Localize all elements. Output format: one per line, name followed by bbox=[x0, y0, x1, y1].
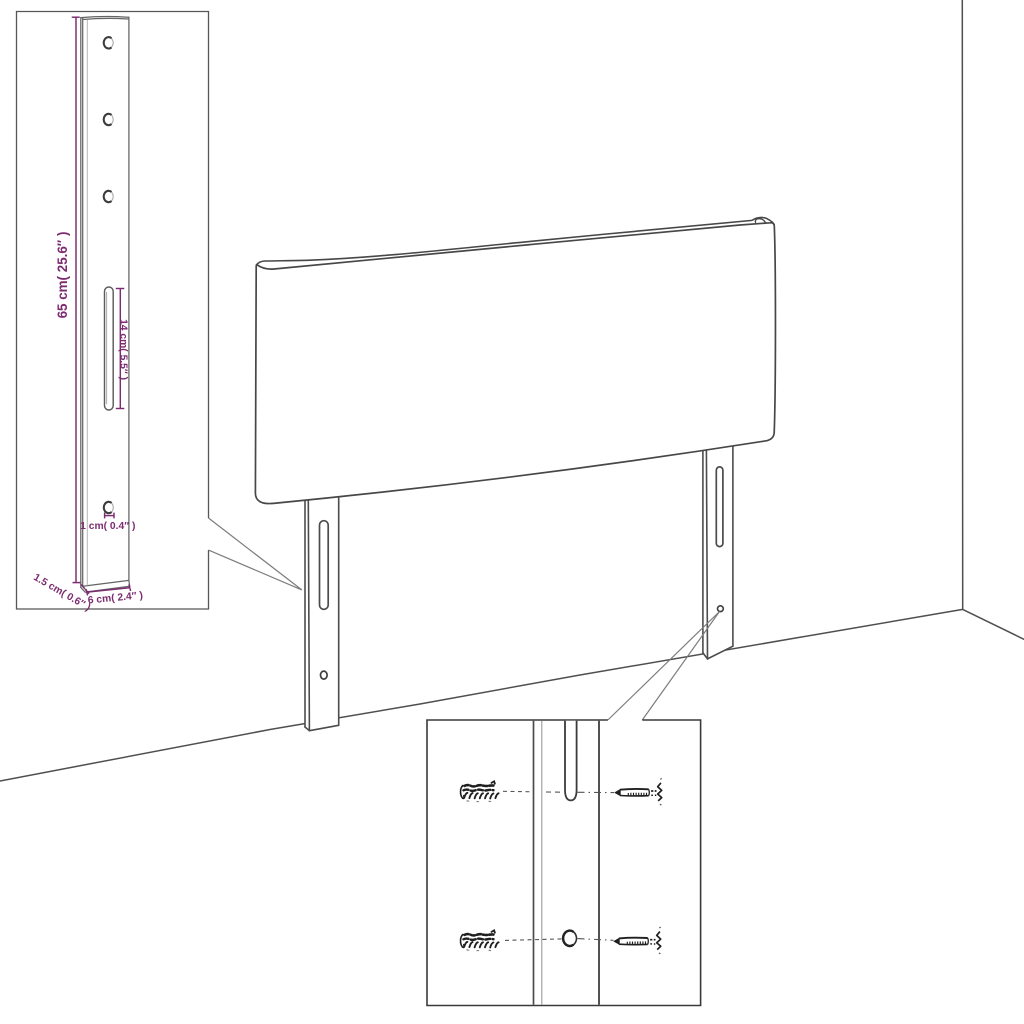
svg-text:65 cm( 25.6″ ): 65 cm( 25.6″ ) bbox=[55, 232, 70, 319]
svg-text:6 cm( 2.4″ ): 6 cm( 2.4″ ) bbox=[87, 590, 143, 606]
svg-text:1 cm( 0.4″ ): 1 cm( 0.4″ ) bbox=[80, 521, 135, 532]
svg-text:14 cm( 5.5″ ): 14 cm( 5.5″ ) bbox=[117, 319, 128, 380]
